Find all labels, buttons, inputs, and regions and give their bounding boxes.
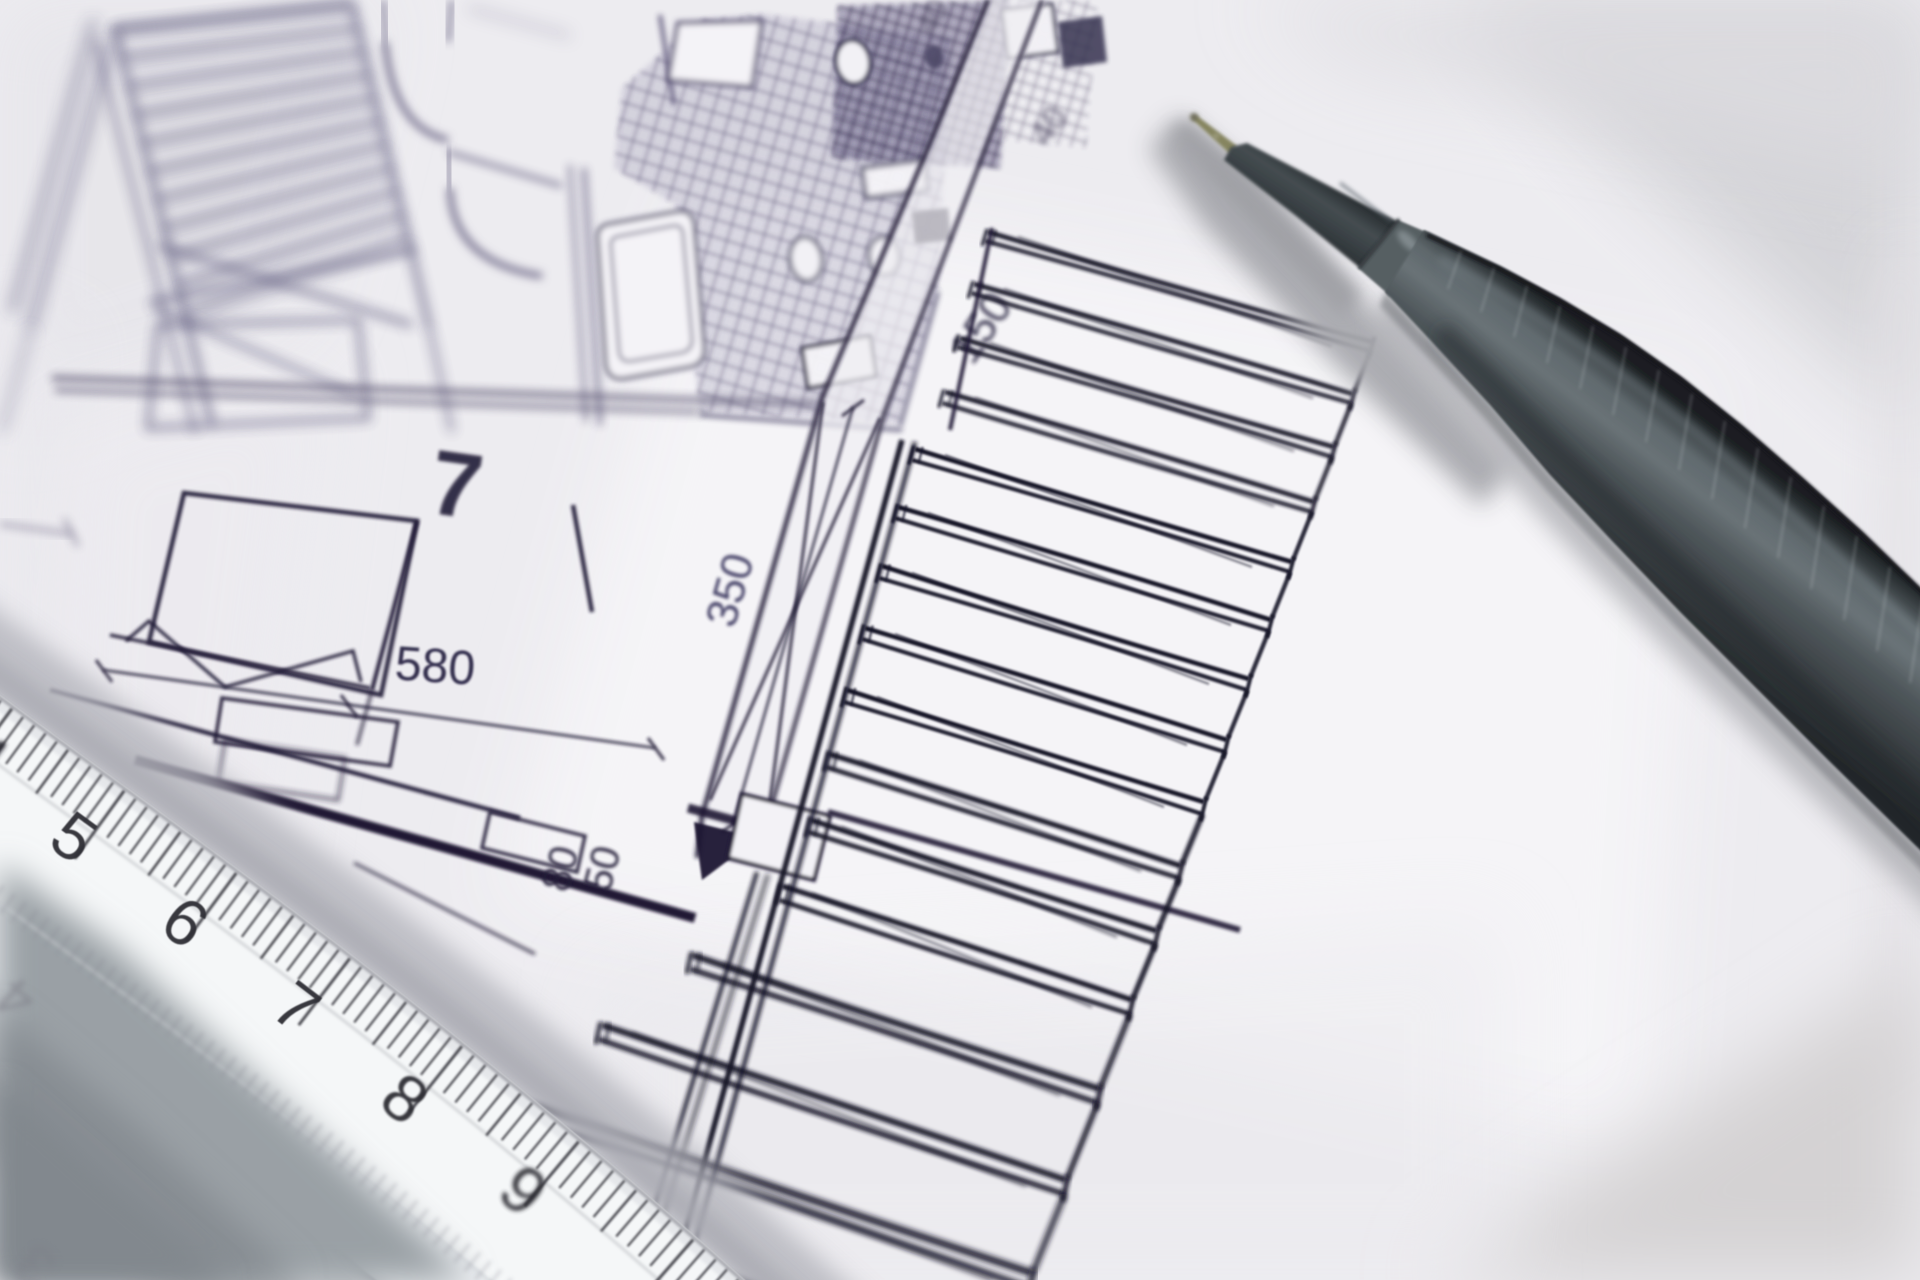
svg-text:580: 580	[393, 637, 477, 695]
